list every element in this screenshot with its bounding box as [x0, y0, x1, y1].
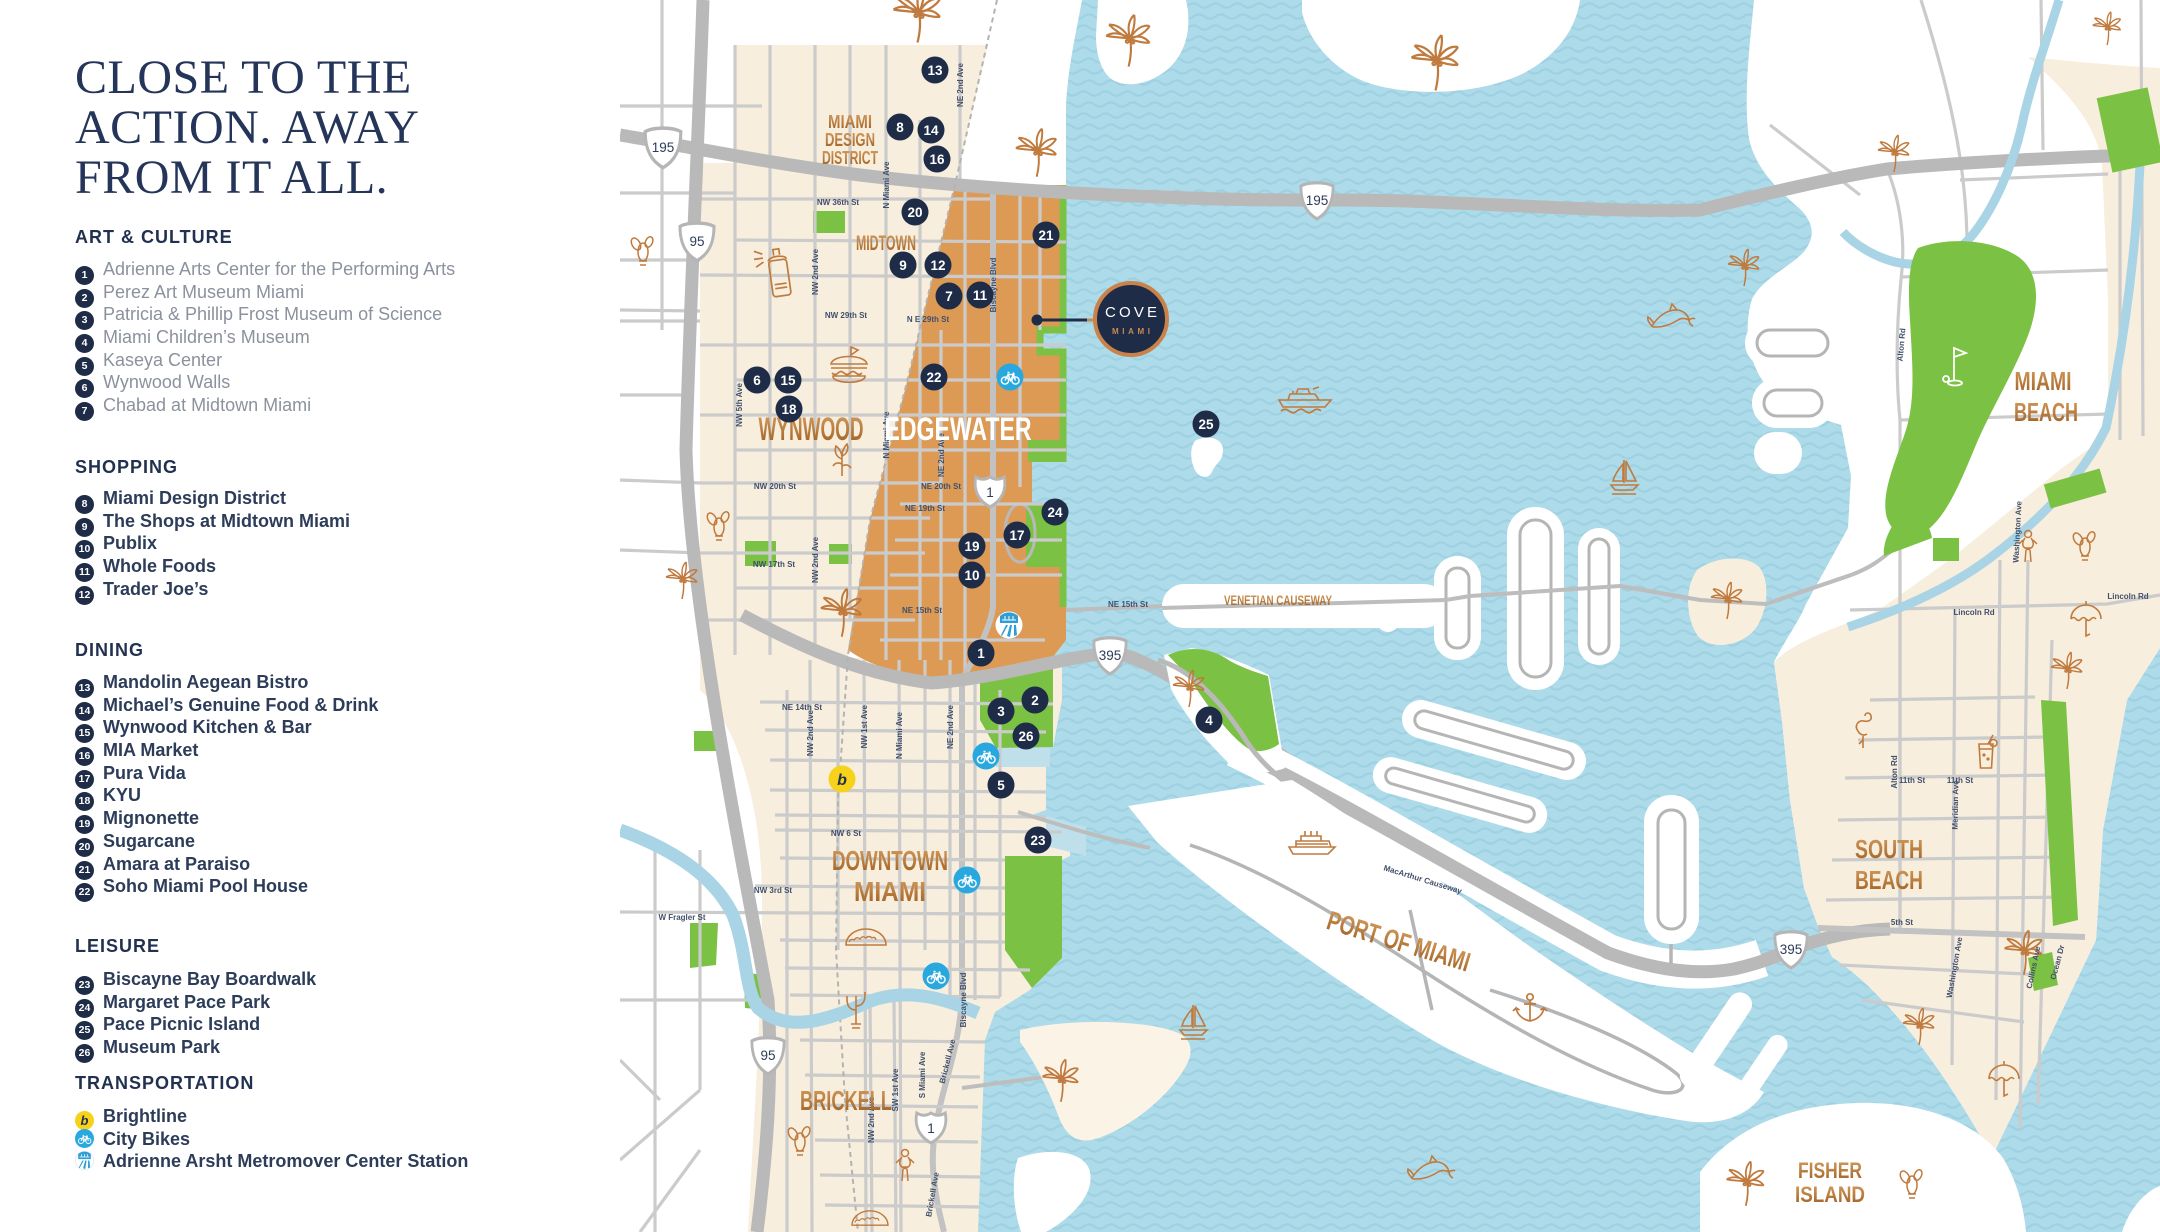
svg-text:Lincoln Rd: Lincoln Rd — [2107, 592, 2148, 601]
svg-text:3: 3 — [997, 704, 1005, 719]
svg-text:20: 20 — [907, 205, 922, 220]
svg-text:EDGEWATER: EDGEWATER — [885, 411, 1032, 447]
svg-text:5th St: 5th St — [1891, 918, 1914, 927]
svg-text:NW 2nd Ave: NW 2nd Ave — [811, 536, 820, 583]
svg-text:NW 3rd St: NW 3rd St — [754, 886, 793, 895]
svg-text:NW 2nd Ave: NW 2nd Ave — [806, 709, 815, 756]
svg-text:1: 1 — [986, 485, 994, 500]
svg-text:8: 8 — [896, 120, 904, 135]
svg-text:25: 25 — [1198, 417, 1214, 432]
svg-text:N E 29th St: N E 29th St — [907, 315, 950, 324]
svg-text:SW 1st Ave: SW 1st Ave — [891, 1068, 900, 1112]
svg-text:11th St: 11th St — [1899, 776, 1926, 785]
svg-text:4: 4 — [1205, 713, 1213, 728]
svg-text:ISLAND: ISLAND — [1795, 1182, 1865, 1207]
svg-text:195: 195 — [1306, 193, 1329, 208]
svg-text:395: 395 — [1780, 942, 1803, 957]
svg-text:16: 16 — [929, 152, 945, 167]
svg-text:2: 2 — [1031, 693, 1039, 708]
svg-text:S Miami Ave: S Miami Ave — [918, 1051, 927, 1098]
svg-text:195: 195 — [652, 140, 675, 155]
svg-text:NE 2nd Ave: NE 2nd Ave — [946, 704, 955, 748]
svg-text:MIAMI: MIAMI — [854, 876, 926, 907]
svg-text:23: 23 — [1030, 833, 1046, 848]
svg-text:NE 2nd Ave: NE 2nd Ave — [956, 63, 965, 107]
svg-text:15: 15 — [780, 373, 796, 388]
svg-text:95: 95 — [689, 234, 704, 249]
svg-text:NW 36th St: NW 36th St — [817, 198, 860, 207]
svg-text:Lincoln Rd: Lincoln Rd — [1953, 608, 1994, 617]
svg-text:NW 1st Ave: NW 1st Ave — [860, 704, 869, 748]
svg-text:Biscayne Blvd: Biscayne Blvd — [959, 973, 968, 1028]
svg-text:DOWNTOWN: DOWNTOWN — [832, 845, 948, 876]
svg-text:MIDTOWN: MIDTOWN — [856, 232, 916, 255]
svg-text:5: 5 — [997, 778, 1005, 793]
svg-text:NW 2nd Ave: NW 2nd Ave — [811, 248, 820, 295]
svg-text:NW 29th St: NW 29th St — [825, 311, 868, 320]
svg-text:95: 95 — [760, 1048, 775, 1063]
svg-text:26: 26 — [1018, 729, 1034, 744]
svg-text:22: 22 — [926, 370, 941, 385]
svg-text:NW 5th Ave: NW 5th Ave — [735, 383, 744, 427]
svg-text:Biscayne Blvd: Biscayne Blvd — [989, 258, 998, 313]
svg-text:W Fragler St: W Fragler St — [658, 913, 705, 922]
svg-text:14: 14 — [923, 123, 939, 138]
svg-text:NW 6 St: NW 6 St — [831, 829, 862, 838]
svg-text:NE 20th St: NE 20th St — [921, 482, 961, 491]
svg-text:19: 19 — [964, 539, 979, 554]
svg-text:NE 15th St: NE 15th St — [902, 606, 942, 615]
svg-text:24: 24 — [1047, 505, 1063, 520]
svg-text:b: b — [837, 772, 847, 789]
svg-text:N Miami Ave: N Miami Ave — [895, 711, 904, 759]
svg-text:NW 17th St: NW 17th St — [753, 560, 796, 569]
svg-text:FISHER: FISHER — [1798, 1158, 1862, 1183]
svg-text:DISTRICT: DISTRICT — [822, 148, 878, 168]
svg-text:NW 20th St: NW 20th St — [754, 482, 797, 491]
svg-text:DESIGN: DESIGN — [825, 130, 875, 150]
svg-text:MIAMI: MIAMI — [828, 112, 872, 132]
svg-text:10: 10 — [964, 568, 979, 583]
svg-text:NE 14th St: NE 14th St — [782, 703, 822, 712]
svg-text:1: 1 — [977, 646, 985, 661]
svg-text:21: 21 — [1038, 228, 1054, 243]
svg-text:BEACH: BEACH — [2014, 397, 2078, 427]
svg-text:9: 9 — [899, 258, 907, 273]
svg-text:18: 18 — [781, 402, 797, 417]
svg-text:7: 7 — [945, 289, 953, 304]
svg-text:VENETIAN CAUSEWAY: VENETIAN CAUSEWAY — [1224, 593, 1332, 608]
svg-text:1: 1 — [927, 1121, 935, 1136]
svg-text:N Miami Ave: N Miami Ave — [882, 161, 891, 209]
svg-text:12: 12 — [930, 258, 945, 273]
svg-text:BEACH: BEACH — [1855, 865, 1923, 895]
svg-text:11: 11 — [973, 288, 988, 303]
svg-text:SOUTH: SOUTH — [1855, 834, 1923, 864]
svg-text:13: 13 — [927, 63, 943, 78]
svg-text:NE 19th St: NE 19th St — [905, 504, 945, 513]
svg-text:Alton Rd: Alton Rd — [1890, 755, 1899, 788]
svg-text:17: 17 — [1009, 528, 1024, 543]
svg-text:NE 15th St: NE 15th St — [1108, 600, 1148, 609]
svg-text:Meridian Ave: Meridian Ave — [1951, 780, 1961, 830]
svg-text:6: 6 — [753, 373, 761, 388]
svg-text:BRICKELL: BRICKELL — [800, 1085, 892, 1116]
svg-text:MIAMI: MIAMI — [2015, 366, 2072, 396]
svg-text:WYNWOOD: WYNWOOD — [759, 411, 864, 447]
svg-text:395: 395 — [1099, 648, 1122, 663]
